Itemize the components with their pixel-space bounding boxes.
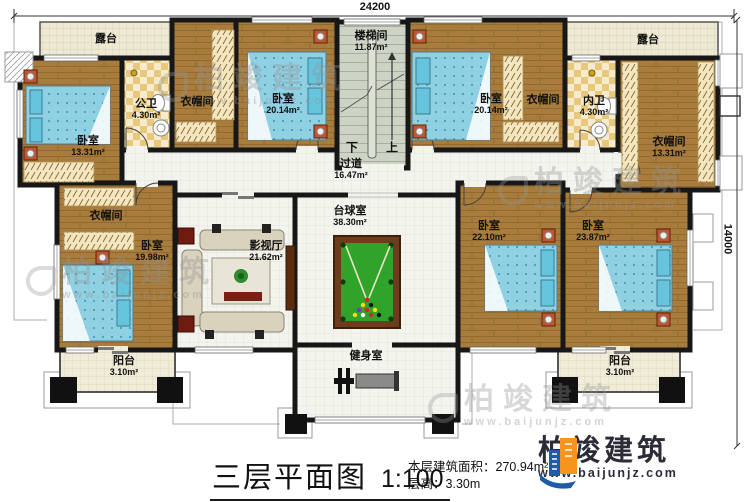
company-logo: 柏竣建筑 www.baijunjz.com <box>538 436 678 480</box>
label-cloak-top-right: 衣帽间 <box>527 95 560 107</box>
label-bedroom-5: 卧室22.10m² <box>472 221 506 243</box>
label-bedroom-3: 卧室20.14m² <box>474 94 508 116</box>
floor-plan-drawing <box>0 0 750 502</box>
label-theater: 影视厅21.62m² <box>249 241 283 263</box>
company-logo-icon <box>538 436 584 490</box>
label-terrace-left: 露台 <box>95 34 117 46</box>
label-bedroom-2: 卧室20.14m² <box>266 94 300 116</box>
label-bedroom-6: 卧室23.87m² <box>576 221 610 243</box>
label-balcony-right: 阳台3.10m² <box>606 356 635 378</box>
drawing-title: 三层平面图 <box>212 454 367 496</box>
dimension-top: 24200 <box>340 1 410 13</box>
stair-down-label: 下 <box>346 139 358 156</box>
floor-height-value: 3.30m <box>446 477 481 491</box>
floor-height-label: 层高： <box>408 477 446 491</box>
floor-plan-page: 柏竣建筑 www.baijunjz.com 柏竣建筑 www.baijunjz.… <box>0 0 750 502</box>
floor-area-label: 本层建筑面积： <box>408 460 496 474</box>
label-cloak-right: 衣帽间13.31m² <box>652 137 686 159</box>
dimension-right: 14000 <box>721 224 733 255</box>
label-balcony-left: 阳台3.10m² <box>110 356 139 378</box>
bed-bedroom-4 <box>63 251 133 341</box>
pool-table <box>334 236 400 328</box>
label-bath-public: 公卫4.30m² <box>132 99 161 121</box>
label-billiards: 台球室38.30m² <box>333 206 367 228</box>
tv-cabinet <box>286 246 295 310</box>
label-corridor: 过道16.47m² <box>334 159 368 181</box>
label-bath-private: 内卫4.30m² <box>580 96 609 118</box>
label-bedroom-4: 卧室19.98m² <box>135 241 169 263</box>
label-cloak-top-left: 衣帽间 <box>181 97 214 109</box>
label-terrace-right: 露台 <box>637 35 659 47</box>
label-cloak-mid-left: 衣帽间 <box>90 211 123 223</box>
label-bedroom-1: 卧室13.31m² <box>71 136 105 158</box>
stair-up-label: 上 <box>386 139 398 156</box>
label-gym: 健身室 <box>350 351 383 363</box>
info-block: 本层建筑面积：270.94m² 层高：3.30m <box>408 459 548 493</box>
label-stairwell: 楼梯间11.87m² <box>354 31 387 53</box>
